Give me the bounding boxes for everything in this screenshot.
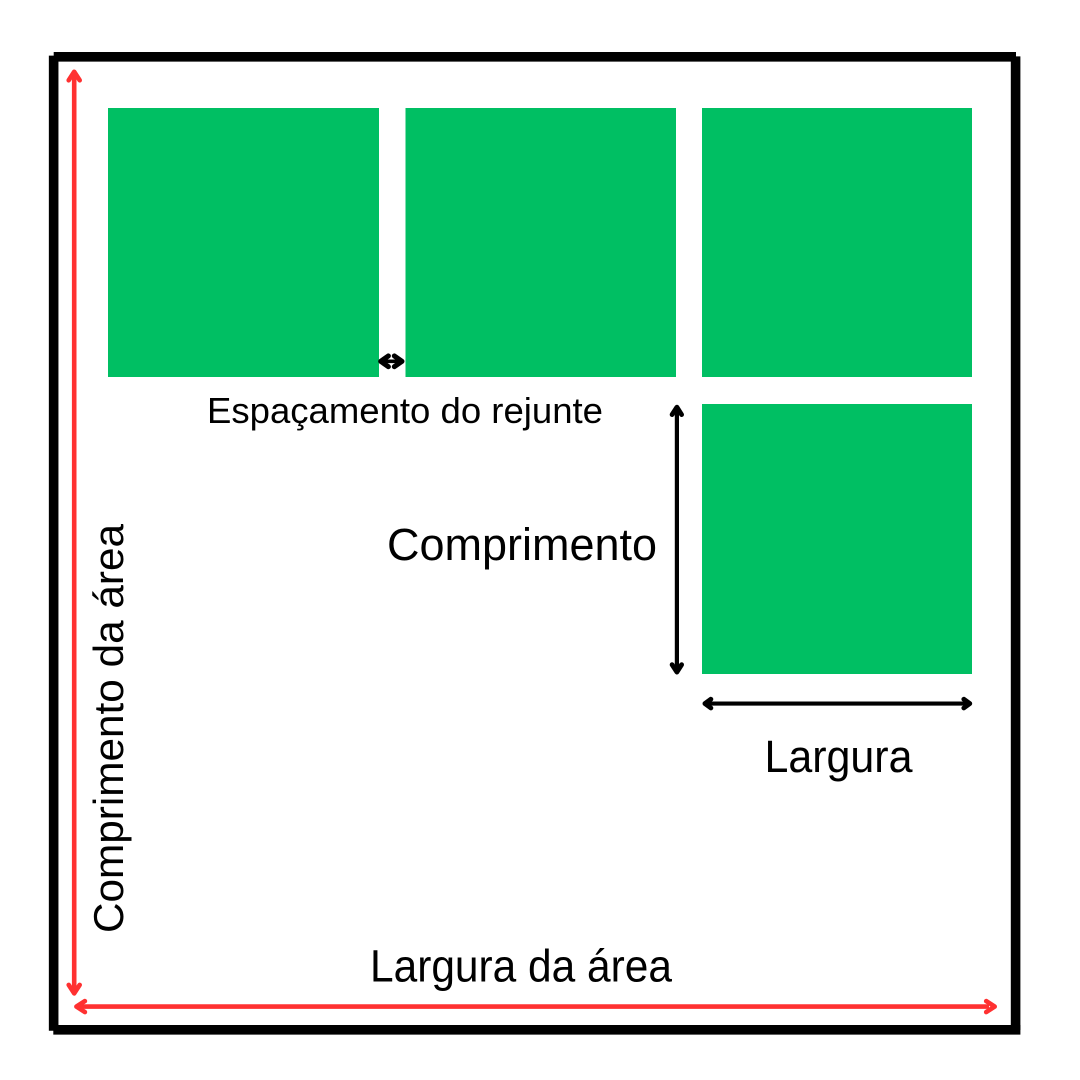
svg-text:Largura da área: Largura da área (370, 941, 673, 992)
svg-text:Comprimento: Comprimento (387, 519, 657, 570)
svg-text:Comprimento da área: Comprimento da área (85, 523, 132, 933)
svg-text:Espaçamento do rejunte: Espaçamento do rejunte (207, 390, 603, 431)
svg-text:Largura: Largura (765, 731, 914, 782)
